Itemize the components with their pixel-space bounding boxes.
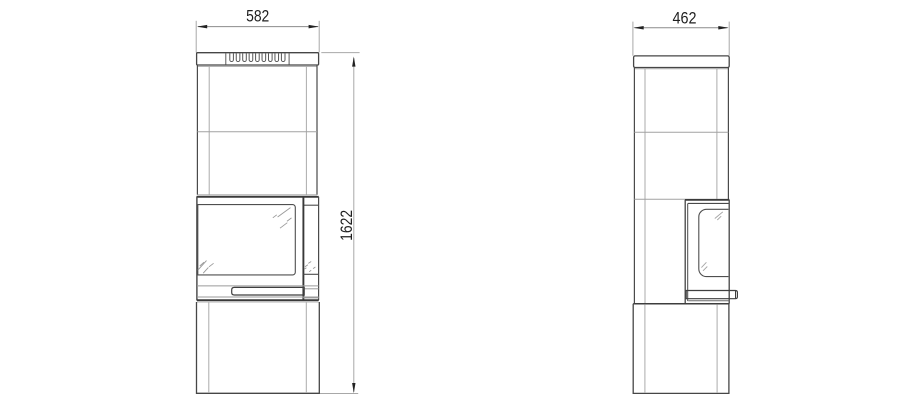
svg-text:1622: 1622 [338, 210, 356, 241]
svg-text:582: 582 [246, 8, 269, 26]
svg-text:462: 462 [673, 10, 697, 28]
